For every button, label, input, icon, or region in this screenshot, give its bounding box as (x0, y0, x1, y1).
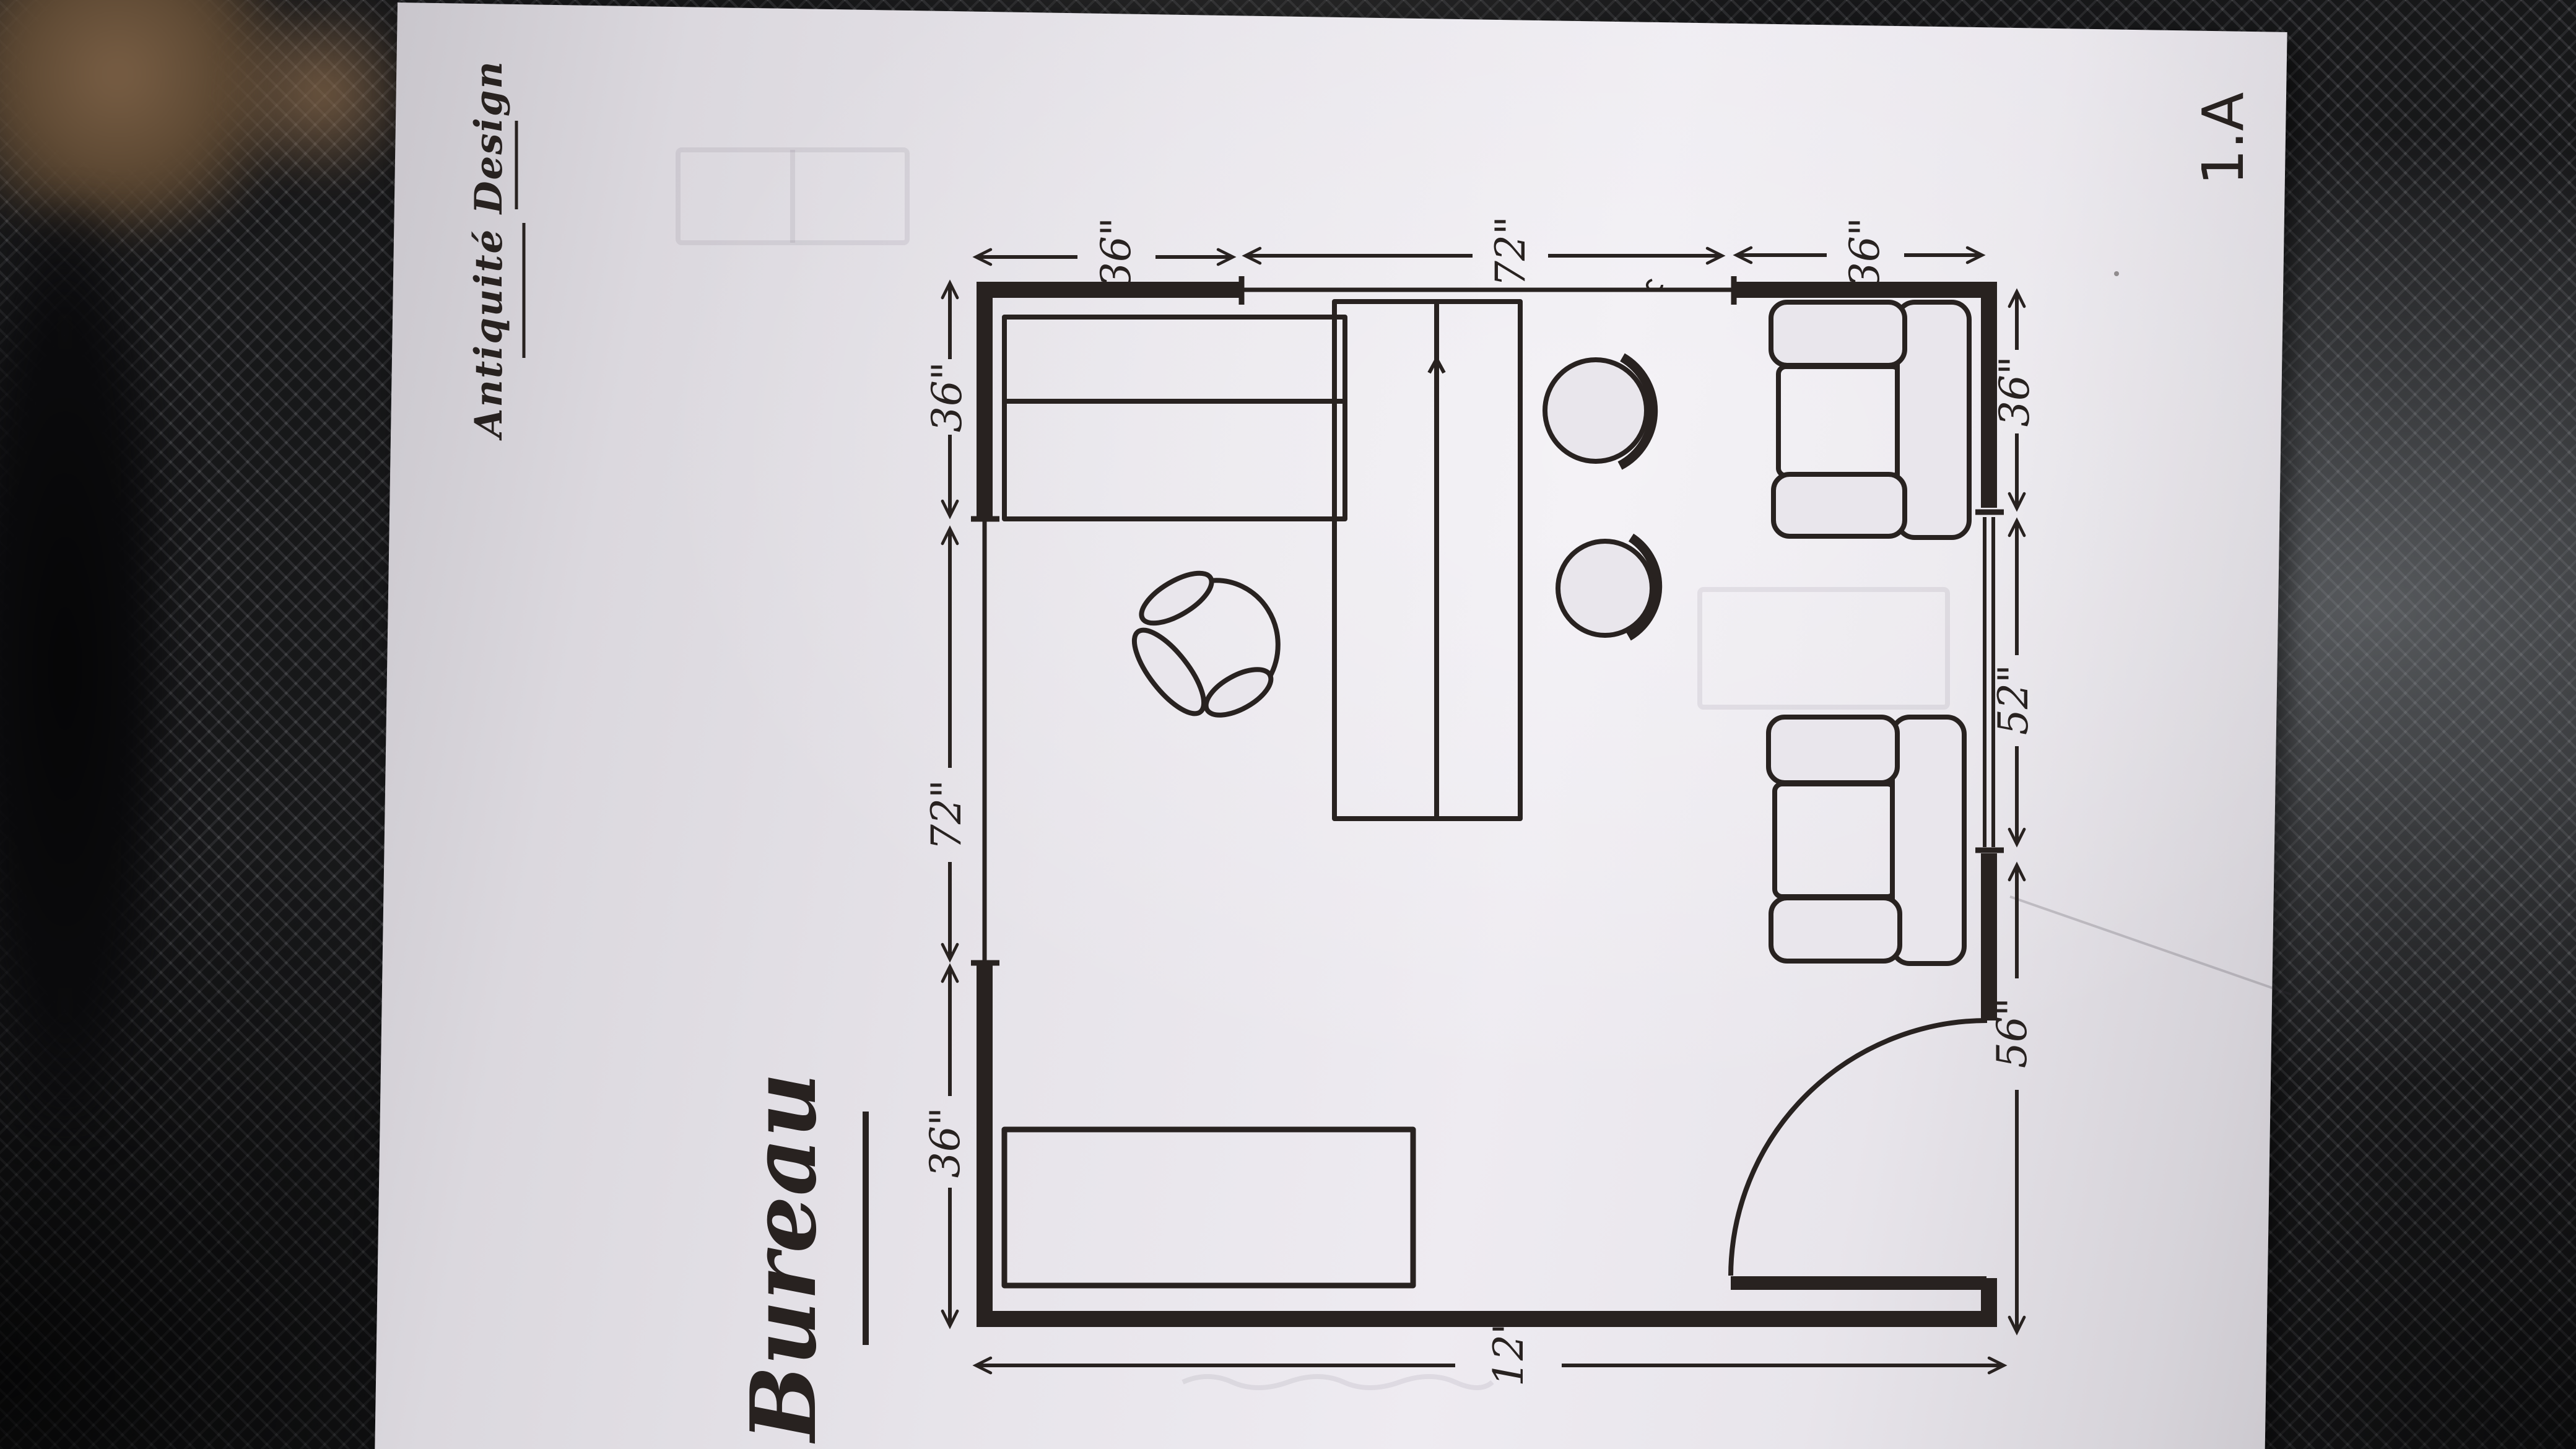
dim-label-right-2: 52" (1990, 664, 2037, 735)
room-walls (971, 276, 2004, 1327)
armchair-2-arm-top (1769, 717, 1897, 783)
dim-label-left-2: 72" (923, 780, 970, 850)
dimension-labels: 36" 72" 36" 36" 72" 36" 36" 52" 56" 12" (921, 216, 2039, 1386)
door-swing-arc (1731, 1020, 1987, 1276)
dimension-lines (950, 255, 2017, 1365)
dim-label-left-1: 36" (923, 362, 971, 432)
dim-label-bottom: 12" (1485, 1316, 1533, 1386)
armchair-1-arm-top (1771, 302, 1905, 365)
paper-crease (2010, 897, 2291, 994)
plan-title: Bureau (731, 1073, 837, 1444)
dim-label-top-3: 36" (1841, 217, 1889, 288)
desk-chair (1123, 563, 1278, 724)
armchair-2-back (1892, 717, 1964, 964)
photo-of-floor-plan: 36" 72" 36" 36" 72" 36" 36" 52" 56" 12" … (0, 0, 2576, 1449)
dim-label-top-1: 36" (1092, 217, 1140, 288)
guest-chair-2-seat (1558, 541, 1652, 635)
desk (1334, 302, 1520, 819)
armchair-2 (1769, 717, 1964, 964)
brand-logo: Antiquité Design (467, 60, 511, 441)
credenza (1004, 1129, 1413, 1286)
armchair-1 (1771, 302, 1969, 537)
dust-speck (2114, 271, 2119, 276)
desk-chair-seat (1209, 580, 1278, 677)
sheet-number: 1.A (2190, 92, 2256, 186)
floor-plan-drawing: 36" 72" 36" 36" 72" 36" 36" 52" 56" 12" … (0, 0, 2576, 1449)
desk-chair-cushion-side (1123, 620, 1216, 723)
dim-label-right-1: 36" (1991, 356, 2039, 427)
door (1731, 1020, 1987, 1283)
guest-chair-1-seat (1545, 360, 1647, 461)
guest-chair-1 (1545, 357, 1653, 466)
armchair-2-seat (1775, 784, 1895, 897)
dim-label-left-3: 36" (921, 1107, 969, 1178)
armchair-1-arm-bottom (1773, 474, 1905, 536)
desk-chair-cushion-top (1134, 563, 1219, 633)
desk-chair-cushion-bottom (1199, 660, 1278, 724)
dim-label-right-3: 56" (1988, 998, 2036, 1068)
titles: Bureau Antiquité Design 1.A (467, 60, 2256, 1444)
bookshelf (1004, 317, 1345, 519)
armchair-1-seat (1778, 367, 1900, 476)
armchair-1-back (1897, 302, 1969, 537)
wall-window-ticks (971, 276, 2004, 963)
dim-label-top-2: 72" (1487, 216, 1534, 287)
guest-chair-2 (1558, 537, 1658, 637)
armchair-2-arm-bottom (1771, 898, 1900, 961)
